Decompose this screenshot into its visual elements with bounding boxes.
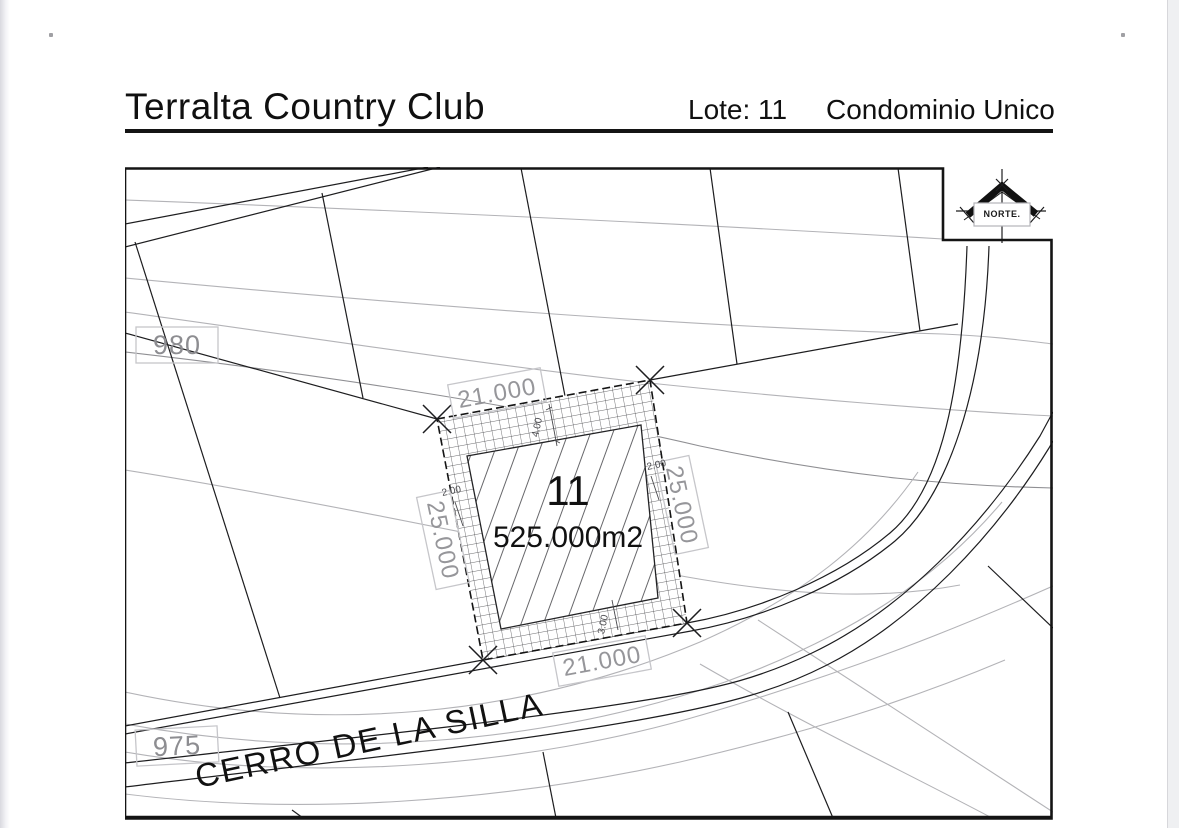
lot-area-label: 525.000m2 (493, 521, 643, 554)
svg-text:980: 980 (153, 330, 201, 360)
svg-text:21.000: 21.000 (561, 641, 644, 682)
north-label: NORTE. (983, 209, 1020, 219)
north-arrow-icon: NORTE. (956, 169, 1046, 243)
contour-label-980: 980 (136, 327, 218, 363)
lot-number-label: 11 (546, 467, 590, 514)
stray-mark-left (49, 33, 53, 37)
header-rule (125, 129, 1053, 133)
site-plan: 11 525.000m2 21.000 21.000 25.000 25.000 (125, 167, 1053, 820)
stray-mark-right (1121, 33, 1125, 37)
condo-reference: Condominio Unico (826, 94, 1055, 126)
scrollbar-track[interactable] (1167, 0, 1179, 828)
page-left-edge (0, 0, 10, 828)
lot-reference: Lote: 11 (688, 94, 787, 126)
page-title: Terralta Country Club (125, 86, 485, 128)
page-background: Terralta Country Club Lote: 11 Condomini… (0, 0, 1179, 828)
lot-11-parcel[interactable]: 11 525.000m2 (437, 380, 687, 660)
